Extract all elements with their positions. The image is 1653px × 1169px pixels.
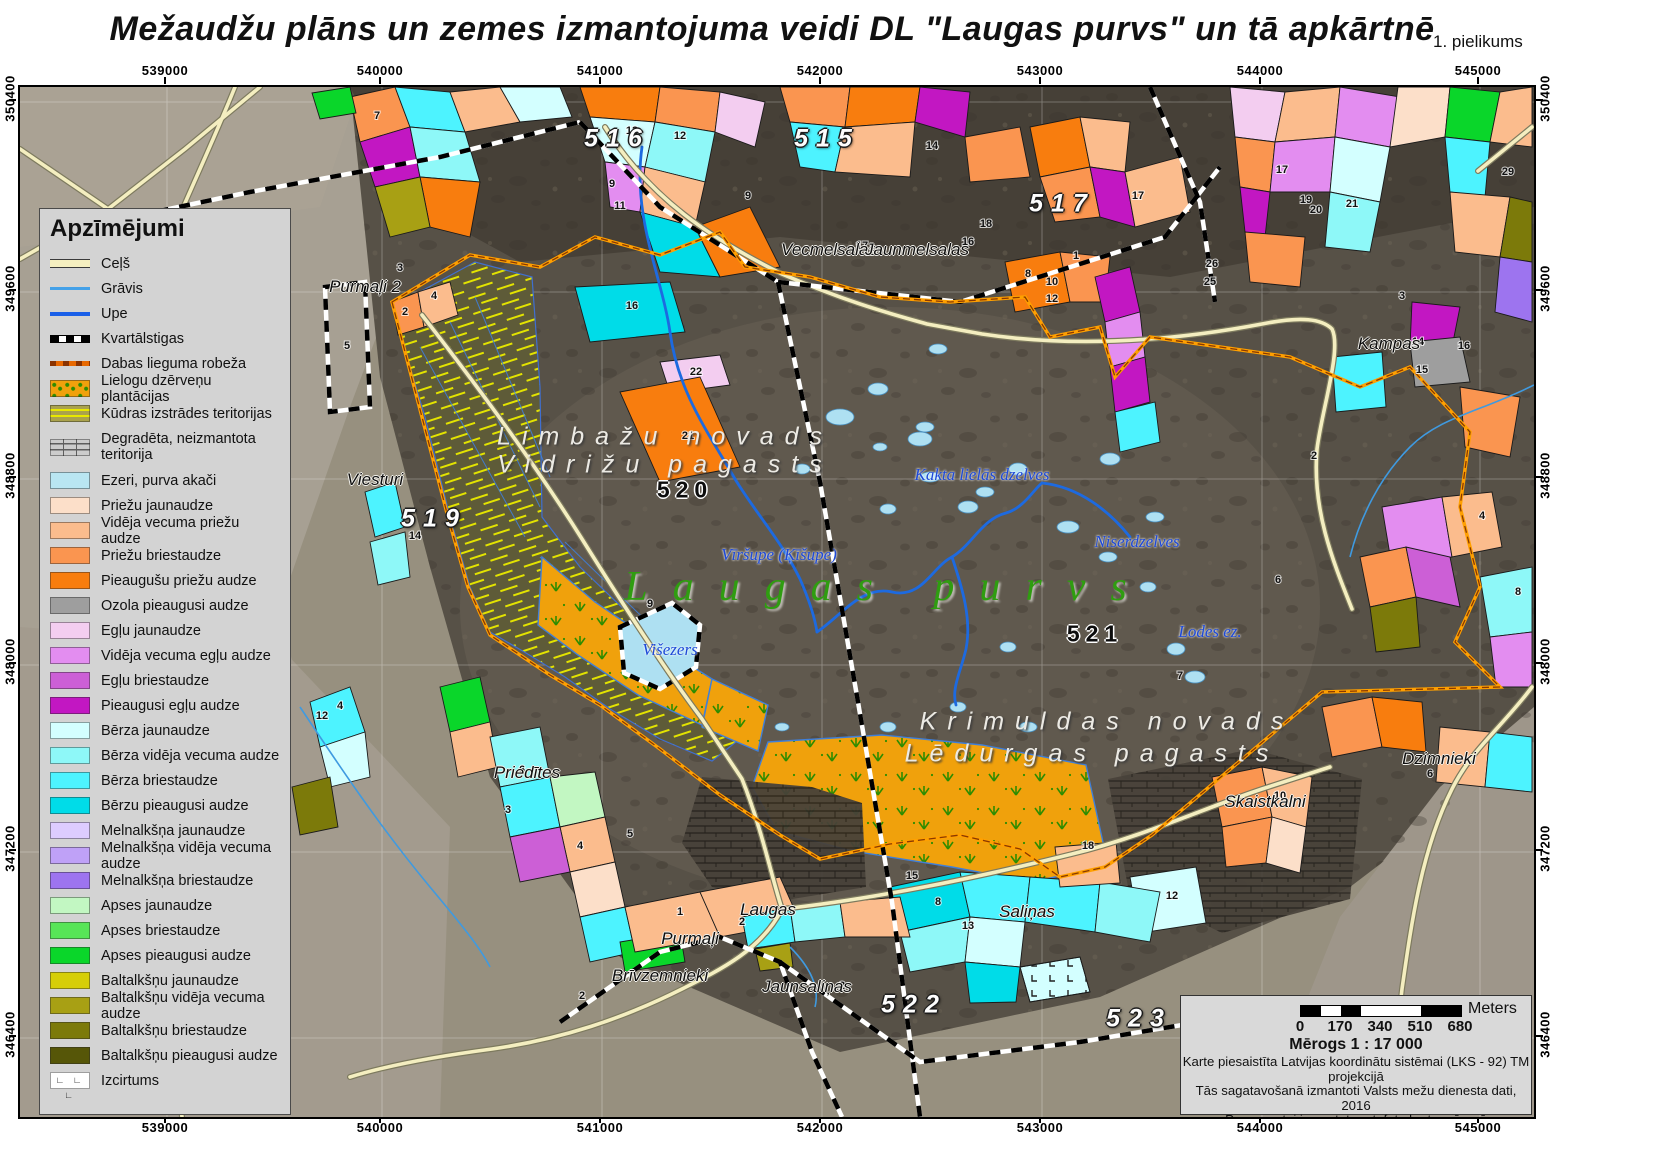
legend-swatch [50, 947, 90, 964]
legend-swatch [50, 797, 90, 814]
ditch-line-symbol [50, 287, 90, 290]
legend-item-label: Bērza jaunaudze [101, 723, 210, 739]
legend-swatch-box [50, 547, 90, 564]
legend-swatch-box [50, 1022, 90, 1039]
map-label-quartal: 517 [1029, 190, 1095, 219]
legend-item-label: Lielogu dzērveņu plantācijas [101, 373, 282, 405]
river-line-symbol [50, 312, 90, 316]
scale-bar-segment [1321, 1006, 1341, 1016]
stand-number: 12 [316, 710, 328, 722]
legend-swatch-box [50, 1047, 90, 1064]
legend-swatch-box [50, 822, 90, 839]
map-label-region: Lēdurgas pagasts [905, 740, 1280, 769]
legend-item-label: Baltalkšņu jaunaudze [101, 973, 239, 989]
stand-number: 3 [1399, 290, 1405, 302]
map-label-place: Skaistkalni [1224, 792, 1305, 812]
stand-number: 17 [1132, 190, 1144, 202]
map-label-water: Niserdzelves [1094, 532, 1179, 552]
map-label-water: Višezers [642, 640, 697, 660]
map-label-quartal: 521 [1067, 621, 1123, 648]
map-label-quartal: 523 [1106, 1005, 1172, 1034]
map-label-region: Krimuldas novads [920, 708, 1295, 737]
stand-number: 10 [1046, 276, 1058, 288]
legend-swatch-box [50, 772, 90, 789]
legend-item-label: Bērza vidēja vecuma audze [101, 748, 279, 764]
legend-item-label: Dabas lieguma robeža [101, 356, 246, 372]
legend-swatch [50, 872, 90, 889]
legend-item: Bērza jaunaudze [50, 718, 282, 743]
legend-swatch [50, 697, 90, 714]
stand-number: 16 [1458, 340, 1470, 352]
map-label-quartal: 519 [401, 505, 467, 534]
legend-item: Bērzu pieaugusi audze [50, 793, 282, 818]
legend-item-label: Baltalkšņu pieaugusi audze [101, 1048, 278, 1064]
coord-label-top: 543000 [1008, 63, 1072, 78]
coord-tick [1536, 1035, 1543, 1037]
stand-number: 3 [397, 262, 403, 274]
credit-line: Tās sagatavošanā izmantoti Valsts mežu d… [1181, 1084, 1531, 1113]
legend-swatch: ∟ ∟ ∟ [50, 1072, 90, 1089]
annex-label: 1. pielikums [1433, 32, 1523, 52]
legend-item: Apses jaunaudze [50, 893, 282, 918]
stand-number: 4 [431, 290, 438, 302]
legend-item-label: Vidēja vecuma egļu audze [101, 648, 271, 664]
map-label-place: Priedītes [494, 763, 560, 783]
legend-item: Ezeri, purva akači [50, 468, 282, 493]
map-scale-text: Mērogs 1 : 17 000 [1181, 1036, 1531, 1054]
legend-item: Bērza briestaudze [50, 768, 282, 793]
legend-item-label: Ezeri, purva akači [101, 473, 216, 489]
legend-swatch-box [50, 997, 90, 1014]
legend-item: Grāvis [50, 276, 282, 301]
legend-swatch [50, 572, 90, 589]
scale-bar [1300, 1005, 1462, 1017]
legend-swatch-box [50, 380, 90, 397]
legend-swatch-river-line [50, 312, 90, 316]
stand-number: 8 [935, 896, 941, 908]
legend-swatch-box [50, 597, 90, 614]
legend-item-label: Pieaugusi egļu audze [101, 698, 240, 714]
stand-number: 7 [1177, 670, 1183, 682]
credit-line: Karte piesaistīta Latvijas koordinātu si… [1181, 1055, 1531, 1084]
legend-item-label: Baltalkšņu vidēja vecuma audze [101, 990, 282, 1022]
legend-swatch-box [50, 722, 90, 739]
stand-number: 4 [577, 840, 584, 852]
legend-item-label: Egļu briestaudze [101, 673, 209, 689]
legend-item-label: Baltalkšņu briestaudze [101, 1023, 247, 1039]
legend-panel: Apzīmējumi CeļšGrāvisUpeKvartālstigasDab… [39, 208, 291, 1115]
legend-item: Pieaugušu priežu audze [50, 568, 282, 593]
legend-swatch-box [50, 897, 90, 914]
stand-number: 8 [1515, 586, 1521, 598]
coord-label-top: 539000 [133, 63, 197, 78]
scale-bar-segment [1381, 1006, 1421, 1016]
legend-item: Upe [50, 301, 282, 326]
legend-item-label: Priežu briestaudze [101, 548, 221, 564]
legend-item-label: Vidēja vecuma priežu audze [101, 515, 282, 547]
stand-number: 17 [1276, 164, 1288, 176]
legend-swatch-box [50, 472, 90, 489]
stand-number: 8 [1025, 268, 1031, 280]
coord-label-top: 542000 [788, 63, 852, 78]
coord-label-top: 544000 [1228, 63, 1292, 78]
legend-swatch-box [50, 747, 90, 764]
coord-tick [1259, 77, 1261, 84]
legend-item-label: Pieaugušu priežu audze [101, 573, 257, 589]
coord-tick [164, 77, 166, 84]
map-label-place: Purmaļi [661, 929, 719, 949]
legend-item: Kvartālstigas [50, 326, 282, 351]
legend-item: Vidēja vecuma egļu audze [50, 643, 282, 668]
coord-tick [1477, 1116, 1479, 1123]
map-label-quartal: 520 [657, 477, 713, 504]
legend-swatch-box [50, 522, 90, 539]
legend-item-label: Izcirtums [101, 1073, 159, 1089]
legend-item-label: Melnalkšņa jaunaudze [101, 823, 245, 839]
stand-number: 5 [627, 828, 633, 840]
coord-label-top: 540000 [348, 63, 412, 78]
legend-swatch-box [50, 697, 90, 714]
legend-swatch [50, 847, 90, 864]
legend-swatch-bound-line [50, 361, 90, 366]
coord-tick [9, 289, 16, 291]
map-label-place: Laugas [740, 900, 796, 920]
legend-swatch-box [50, 405, 90, 422]
legend-item: Baltalkšņu pieaugusi audze [50, 1043, 282, 1068]
coord-tick [379, 1116, 381, 1123]
stand-number: 15 [1416, 364, 1428, 376]
legend-swatch [50, 672, 90, 689]
map-label-place: Kampas [1358, 334, 1420, 354]
legend-swatch [50, 747, 90, 764]
legend-item-label: Apses briestaudze [101, 923, 220, 939]
stand-number: 3 [505, 804, 511, 816]
legend-swatch-box [50, 622, 90, 639]
scale-bar-segment [1361, 1006, 1381, 1016]
stand-number: 15 [906, 870, 918, 882]
stand-number: 4 [337, 700, 344, 712]
legend-swatch [50, 622, 90, 639]
legend-item: Priežu briestaudze [50, 543, 282, 568]
stand-number: 13 [962, 920, 974, 932]
stand-number: 2 [579, 990, 585, 1002]
legend-swatch [50, 897, 90, 914]
legend-swatch-box [50, 947, 90, 964]
stand-number: 6 [1427, 768, 1433, 780]
map-label-region: Limbažu novads [497, 423, 833, 452]
legend-item-label: Ozola pieaugusi audze [101, 598, 249, 614]
legend-swatch-box [50, 439, 90, 456]
legend-item-label: Priežu jaunaudze [101, 498, 213, 514]
stand-number: 29 [1502, 166, 1514, 178]
legend-swatch [50, 472, 90, 489]
stand-number: 2 [1311, 450, 1317, 462]
legend-swatch [50, 647, 90, 664]
legend-swatch [50, 772, 90, 789]
stand-number: 12 [674, 130, 686, 142]
legend-item-label: Bērza briestaudze [101, 773, 218, 789]
coord-tick [9, 99, 16, 101]
legend-swatch-box [50, 847, 90, 864]
legend-item: Lielogu dzērveņu plantācijas [50, 376, 282, 401]
stand-number: 21 [1346, 198, 1358, 210]
scale-bar-segment [1421, 1006, 1461, 1016]
map-credits: Karte piesaistīta Latvijas koordinātu si… [1181, 1055, 1531, 1119]
scale-bar-units: Meters [1468, 1000, 1517, 1018]
legend-item-label: Kūdras izstrādes teritorijas [101, 406, 272, 422]
map-label-place: Jaunsaliņas [762, 977, 852, 997]
legend-swatch [50, 997, 90, 1014]
legend-item: Egļu briestaudze [50, 668, 282, 693]
legend-swatch-box [50, 872, 90, 889]
map-label-place: Vecmelsalas [781, 240, 877, 260]
map-label-quartal: 515 [794, 125, 860, 154]
stand-number: 25 [1204, 276, 1216, 288]
stand-number: 11 [614, 200, 626, 212]
map-label-place: Purmaļi 2 [329, 277, 401, 297]
stand-number: 9 [745, 190, 751, 202]
stand-number: 26 [1206, 258, 1218, 270]
coord-tick [1536, 662, 1543, 664]
legend-item: Ceļš [50, 251, 282, 276]
map-label-quartal: 516 [584, 125, 650, 154]
legend-item: Bērza vidēja vecuma audze [50, 743, 282, 768]
legend-item-label: Bērzu pieaugusi audze [101, 798, 249, 814]
legend-item: Kūdras izstrādes teritorijas [50, 401, 282, 426]
scale-bar-tick-label: 340 [1367, 1018, 1392, 1035]
scale-bar-segment [1341, 1006, 1361, 1016]
coord-tick [1536, 849, 1543, 851]
coord-tick [1259, 1116, 1261, 1123]
legend-item: Apses pieaugusi audze [50, 943, 282, 968]
legend-swatch-box [50, 922, 90, 939]
legend-swatch-box: ∟ ∟ ∟ [50, 1072, 90, 1089]
legend-item: Egļu jaunaudze [50, 618, 282, 643]
stand-number: 4 [1479, 510, 1486, 522]
stand-number: 6 [1275, 574, 1281, 586]
legend-item-label: Grāvis [101, 281, 143, 297]
stand-number: 22 [690, 366, 702, 378]
coord-tick [9, 476, 16, 478]
stand-number: 12 [1166, 890, 1178, 902]
legend-item: Vidēja vecuma priežu audze [50, 518, 282, 543]
legend-item-label: Melnalkšņa vidēja vecuma audze [101, 840, 282, 872]
legend-swatch-road-line [50, 259, 90, 268]
map-label-water: Vīršupe (Ķīšupe) [721, 545, 837, 565]
legend-swatch-box [50, 672, 90, 689]
legend-swatch [50, 405, 90, 422]
legend-swatch [50, 380, 90, 397]
legend-item-label: Egļu jaunaudze [101, 623, 201, 639]
legend-item: Degradēta, neizmantota teritorija [50, 426, 282, 468]
legend-swatch-box [50, 972, 90, 989]
legend-item-label: Upe [101, 306, 128, 322]
legend-swatch [50, 439, 90, 456]
legend-item: Baltalkšņu briestaudze [50, 1018, 282, 1043]
legend-swatch [50, 1047, 90, 1064]
legend-swatch [50, 922, 90, 939]
legend-item: Melnalkšņa vidēja vecuma audze [50, 843, 282, 868]
coord-tick [1536, 99, 1543, 101]
coord-tick [1536, 476, 1543, 478]
legend-item-label: Degradēta, neizmantota teritorija [101, 431, 282, 463]
map-label-place: Viesturi [347, 470, 403, 490]
stand-number: 12 [1046, 293, 1058, 305]
legend-swatch-box [50, 497, 90, 514]
bound-line-symbol [50, 361, 90, 366]
coord-tick [819, 77, 821, 84]
legend-item: Baltalkšņu vidēja vecuma audze [50, 993, 282, 1018]
map-label-water: Lodes ez. [1178, 622, 1241, 642]
map-frame: 7131291116222114161791810121718262520211… [18, 85, 1536, 1119]
map-label-region: Vidrižu pagasts [497, 451, 832, 480]
scale-bar-tick-label: 510 [1407, 1018, 1432, 1035]
dash-line-symbol [50, 335, 90, 343]
legend-item: Ozola pieaugusi audze [50, 593, 282, 618]
coord-label-top: 541000 [568, 63, 632, 78]
legend-swatch-box [50, 647, 90, 664]
stand-number: 14 [926, 140, 939, 152]
scale-info-box: Meters 0170340510680 Mērogs 1 : 17 000 K… [1180, 995, 1532, 1115]
coord-label-top: 545000 [1446, 63, 1510, 78]
coord-tick [9, 662, 16, 664]
legend-item-label: Apses jaunaudze [101, 898, 212, 914]
legend-swatch [50, 497, 90, 514]
stand-number: 16 [626, 300, 638, 312]
legend-item: Apses briestaudze [50, 918, 282, 943]
legend-swatch [50, 972, 90, 989]
legend-swatch [50, 547, 90, 564]
legend-item-label: Ceļš [101, 256, 130, 272]
coord-tick [1039, 77, 1041, 84]
scale-bar-tick-label: 680 [1447, 1018, 1472, 1035]
legend-swatch [50, 822, 90, 839]
coord-tick [1039, 1116, 1041, 1123]
stand-number: 1 [677, 906, 683, 918]
legend-swatch-ditch-line [50, 287, 90, 290]
coord-tick [599, 1116, 601, 1123]
stand-number: 19 [1300, 194, 1312, 206]
scale-bar-tick-label: 0 [1296, 1018, 1304, 1035]
coord-tick [599, 77, 601, 84]
stand-number: 7 [374, 110, 380, 122]
coord-tick [164, 1116, 166, 1123]
map-label-place: Saliņas [999, 902, 1055, 922]
map-label-bog-name: Laugas purvs [624, 563, 1152, 611]
coord-tick [9, 849, 16, 851]
legend-swatch [50, 1022, 90, 1039]
legend-item-label: Kvartālstigas [101, 331, 184, 347]
stand-number: 2 [402, 306, 408, 318]
legend-item: Melnalkšņa briestaudze [50, 868, 282, 893]
stand-number: 18 [980, 218, 992, 230]
legend-swatch [50, 597, 90, 614]
page-title: Mežaudžu plāns un zemes izmantojuma veid… [110, 10, 1435, 49]
scale-bar-tick-label: 170 [1327, 1018, 1352, 1035]
map-label-place: Brīvzemnieki [612, 966, 708, 986]
coord-tick [819, 1116, 821, 1123]
map-label-place: Jaunmelsalas [865, 240, 969, 260]
map-label-quartal: 522 [881, 991, 947, 1020]
road-line-symbol [50, 259, 90, 268]
map-label-water: Kakta lielās dzelves [914, 465, 1049, 485]
stand-number: 9 [609, 178, 615, 190]
legend-item-label: Apses pieaugusi audze [101, 948, 251, 964]
legend-swatch-box [50, 572, 90, 589]
stand-number: 18 [1082, 840, 1094, 852]
coord-tick [1477, 77, 1479, 84]
map-sheet: Mežaudžu plāns un zemes izmantojuma veid… [0, 0, 1653, 1169]
legend-swatch-box [50, 797, 90, 814]
legend-item: ∟ ∟ ∟Izcirtums [50, 1068, 282, 1093]
coord-tick [379, 77, 381, 84]
legend-swatch-dash-line [50, 335, 90, 343]
scale-bar-segment [1301, 1006, 1321, 1016]
stand-number: 5 [344, 340, 350, 352]
coord-tick [9, 1035, 16, 1037]
legend-body: CeļšGrāvisUpeKvartālstigasDabas lieguma … [50, 251, 282, 1093]
legend-swatch [50, 522, 90, 539]
stand-number: 1 [1073, 250, 1079, 262]
legend-item: Pieaugusi egļu audze [50, 693, 282, 718]
coord-tick [1536, 289, 1543, 291]
legend-swatch [50, 722, 90, 739]
legend-title: Apzīmējumi [50, 215, 282, 243]
legend-item-label: Melnalkšņa briestaudze [101, 873, 253, 889]
map-label-place: Dzimnieki [1402, 749, 1476, 769]
